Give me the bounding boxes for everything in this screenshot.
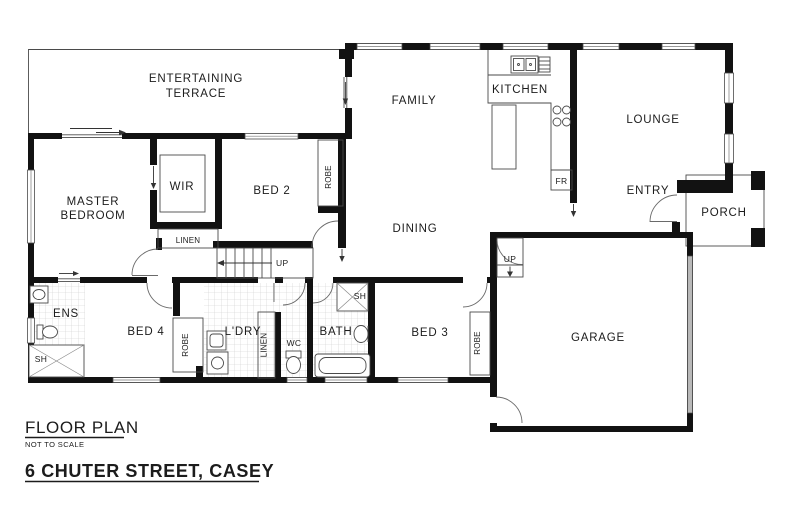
porch-post-bottom bbox=[751, 228, 765, 247]
window bbox=[398, 378, 448, 383]
sliding-door-markers bbox=[58, 77, 576, 281]
label-dining: DINING bbox=[392, 223, 437, 235]
label-master-line2: BEDROOM bbox=[60, 210, 125, 222]
label-entry: ENTRY bbox=[627, 185, 670, 197]
master-bedroom-door bbox=[132, 249, 158, 276]
label-bed2: BED 2 bbox=[253, 185, 290, 197]
bathtub bbox=[315, 354, 370, 377]
wc-toilet bbox=[286, 351, 301, 374]
family-terrace-slider bbox=[343, 77, 348, 108]
window bbox=[503, 44, 548, 50]
ensuite-slider bbox=[58, 271, 80, 281]
garage-door bbox=[688, 256, 693, 413]
label-bed4: BED 4 bbox=[127, 326, 164, 338]
bath-basin bbox=[354, 326, 368, 343]
label-garage: GARAGE bbox=[571, 332, 625, 344]
scale-note: NOT TO SCALE bbox=[25, 440, 84, 449]
island-bench bbox=[492, 105, 516, 169]
window bbox=[28, 170, 35, 243]
label-linen-hall: LINEN bbox=[176, 236, 201, 245]
bed4-door-arc bbox=[147, 283, 172, 308]
window bbox=[325, 378, 367, 383]
dish-drainer bbox=[539, 57, 550, 72]
label-up-garage: UP bbox=[504, 254, 516, 264]
label-terrace-line1: ENTERTAINING bbox=[149, 73, 243, 85]
room-labels: ENTERTAINING TERRACE MASTER BEDROOM WIR … bbox=[35, 73, 747, 364]
kitchen-fixtures bbox=[488, 50, 572, 190]
window bbox=[113, 378, 160, 383]
window bbox=[28, 318, 35, 343]
ensuite-toilet bbox=[37, 325, 58, 339]
washing-machine-space bbox=[207, 352, 228, 374]
label-terrace-line2: TERRACE bbox=[166, 88, 227, 100]
label-kitchen: KITCHEN bbox=[492, 84, 548, 96]
label-bed3: BED 3 bbox=[411, 327, 448, 339]
garage-elements bbox=[496, 238, 693, 423]
window bbox=[725, 73, 734, 103]
label-wc: WC bbox=[287, 338, 302, 348]
label-master-line1: MASTER bbox=[67, 196, 120, 208]
exterior-walls bbox=[28, 43, 733, 432]
window bbox=[357, 44, 402, 50]
porch-post-top bbox=[751, 171, 765, 190]
label-up-stairs: UP bbox=[276, 258, 288, 268]
label-bath: BATH bbox=[319, 326, 352, 338]
garage-step-down-arrow bbox=[507, 272, 513, 278]
label-robe-bed3: ROBE bbox=[473, 331, 482, 354]
label-fridge: FR bbox=[556, 176, 568, 186]
label-wir: WIR bbox=[170, 181, 195, 193]
label-family: FAMILY bbox=[392, 95, 437, 107]
address-title: 6 CHUTER STREET, CASEY bbox=[25, 461, 274, 481]
title-block: FLOOR PLAN NOT TO SCALE 6 CHUTER STREET,… bbox=[25, 418, 274, 482]
kitchen-sink bbox=[511, 56, 538, 73]
window bbox=[430, 44, 480, 50]
floor-plan-page: ENTERTAINING TERRACE MASTER BEDROOM WIR … bbox=[0, 0, 790, 527]
label-shower-bath: SH bbox=[354, 291, 366, 301]
window bbox=[725, 134, 734, 163]
front-door bbox=[650, 195, 677, 222]
stairs bbox=[217, 248, 313, 278]
dining-opening-marker bbox=[339, 249, 344, 262]
master-terrace-slider bbox=[62, 129, 126, 138]
garage-rear-door-arc bbox=[496, 397, 522, 423]
window bbox=[287, 378, 307, 383]
bed2-door-arc bbox=[312, 221, 338, 247]
label-laundry: L'DRY bbox=[225, 326, 262, 338]
plan-title: FLOOR PLAN bbox=[25, 418, 139, 437]
bed3-door-arc bbox=[463, 283, 487, 307]
ensuite-basin bbox=[30, 286, 48, 303]
window bbox=[245, 134, 298, 140]
label-robe-bed4: ROBE bbox=[181, 333, 190, 356]
window bbox=[662, 44, 695, 50]
label-porch: PORCH bbox=[701, 207, 747, 219]
window bbox=[583, 44, 619, 50]
cooktop bbox=[553, 106, 571, 126]
floor-plan-drawing: ENTERTAINING TERRACE MASTER BEDROOM WIR … bbox=[0, 0, 790, 527]
label-lounge: LOUNGE bbox=[626, 114, 679, 126]
wir-door-marker bbox=[151, 166, 156, 189]
label-shower-ens: SH bbox=[35, 354, 47, 364]
label-linen-bath: LINEN bbox=[260, 333, 269, 358]
label-ensuite: ENS bbox=[53, 308, 79, 320]
label-robe-bed2: ROBE bbox=[324, 165, 333, 188]
laundry-tub bbox=[207, 331, 226, 350]
kitchen-opening-marker bbox=[571, 204, 576, 217]
